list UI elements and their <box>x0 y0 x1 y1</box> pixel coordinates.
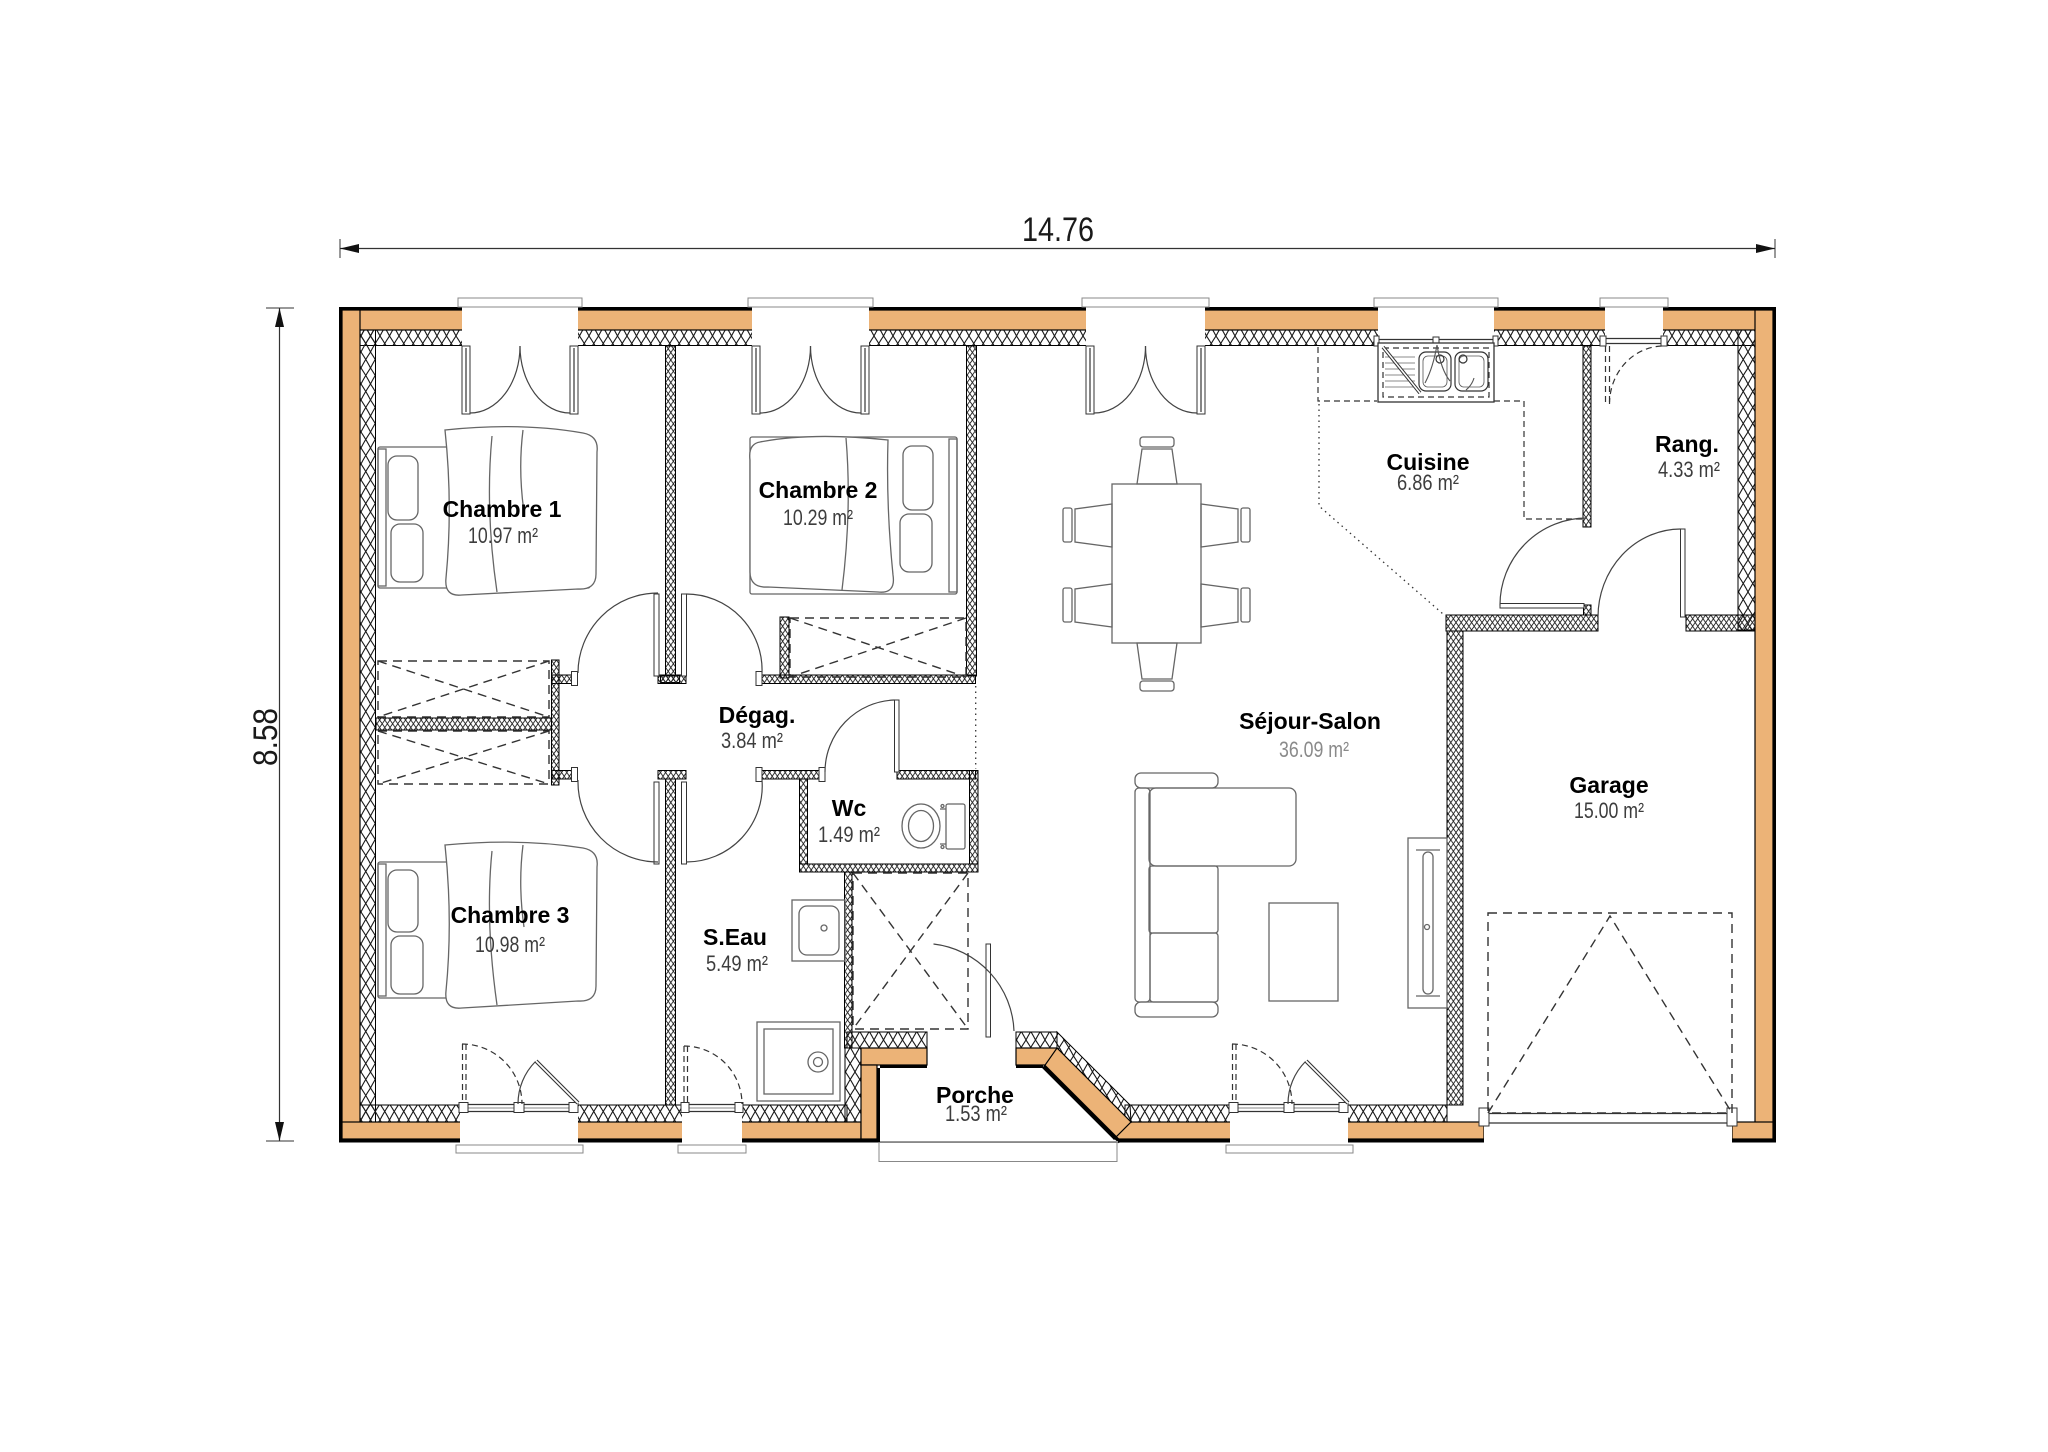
svg-text:4.33 m²: 4.33 m² <box>1658 457 1720 482</box>
svg-text:5.49 m²: 5.49 m² <box>706 951 768 976</box>
svg-text:Rang.: Rang. <box>1655 431 1719 457</box>
svg-text:10.29 m²: 10.29 m² <box>783 505 853 530</box>
svg-text:S.Eau: S.Eau <box>703 924 767 950</box>
svg-text:Séjour-Salon: Séjour-Salon <box>1239 708 1381 734</box>
svg-text:14.76: 14.76 <box>1022 211 1094 249</box>
svg-text:36.09 m²: 36.09 m² <box>1279 737 1349 762</box>
svg-text:8.58: 8.58 <box>247 708 285 766</box>
svg-text:10.98 m²: 10.98 m² <box>475 932 545 957</box>
svg-text:6.86 m²: 6.86 m² <box>1397 470 1459 495</box>
svg-text:Dégag.: Dégag. <box>719 702 796 728</box>
svg-text:1.49 m²: 1.49 m² <box>818 822 880 847</box>
svg-text:Garage: Garage <box>1569 772 1648 798</box>
svg-text:1.53 m²: 1.53 m² <box>945 1101 1007 1126</box>
svg-text:3.84 m²: 3.84 m² <box>721 728 783 753</box>
svg-text:Wc: Wc <box>832 795 867 821</box>
svg-text:Chambre 1: Chambre 1 <box>443 496 562 522</box>
svg-text:Chambre 3: Chambre 3 <box>451 902 570 928</box>
svg-text:Chambre 2: Chambre 2 <box>759 477 878 503</box>
svg-text:15.00 m²: 15.00 m² <box>1574 798 1644 823</box>
svg-text:10.97 m²: 10.97 m² <box>468 523 538 548</box>
